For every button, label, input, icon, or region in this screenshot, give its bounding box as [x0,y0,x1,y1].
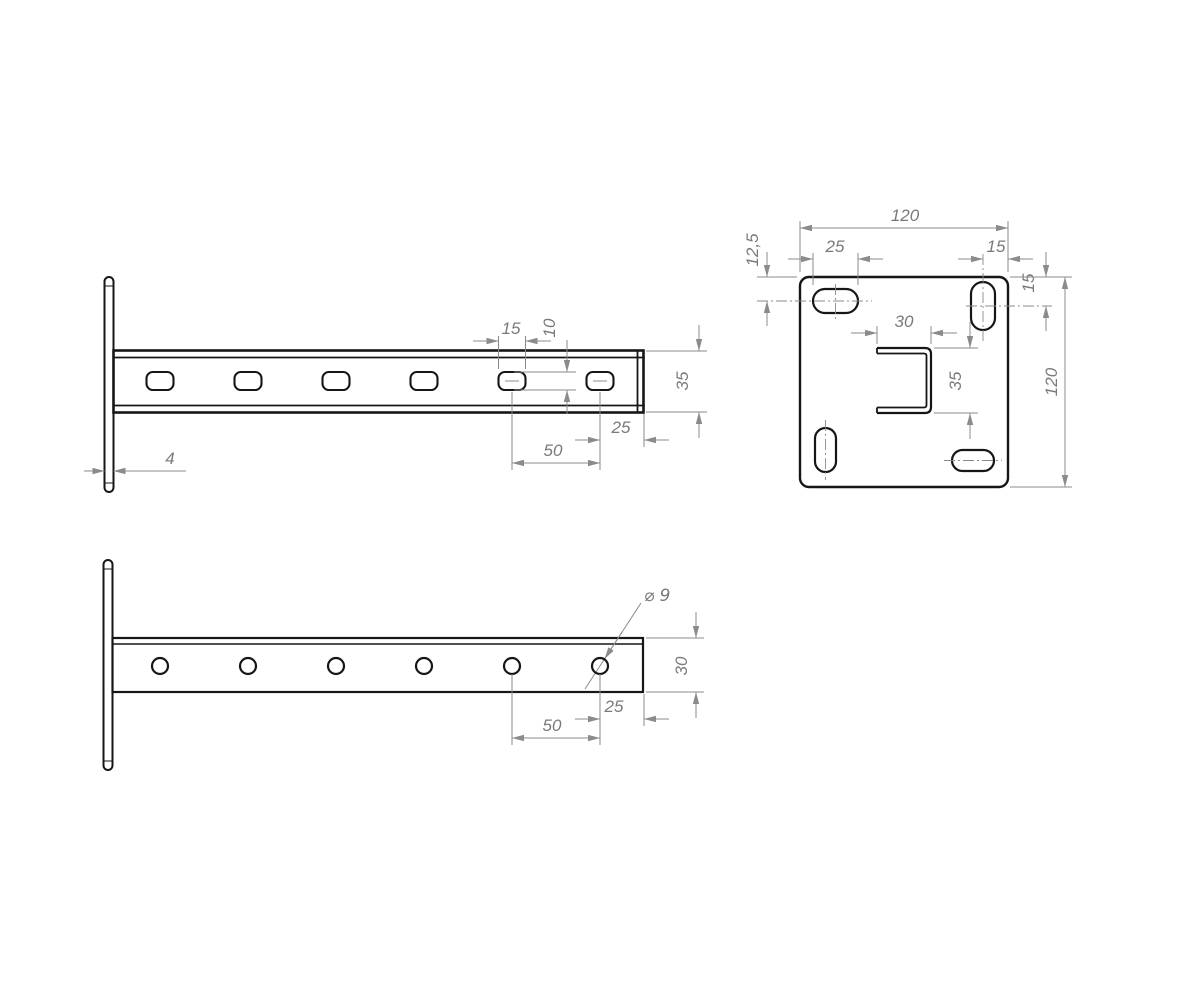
dim-label: 15 [987,237,1006,256]
drawing-svg: 15 10 35 25 50 [0,0,1200,1000]
plan-view-strip [113,638,644,692]
dim-top-edge-to-slot: 12,5 [743,233,797,326]
slot [323,372,350,390]
dim-label: 25 [825,237,845,256]
dim-label: 25 [604,697,624,716]
dim-label: 120 [1042,367,1061,396]
plan-view: ⌀ 9 30 25 50 [104,560,705,770]
dim-label: 25 [611,418,631,437]
technical-drawing-canvas: 15 10 35 25 50 [0,0,1200,1000]
dim-label: 30 [895,312,914,331]
dim-label: 120 [891,206,920,225]
dim-strip-width: 30 [646,612,704,718]
face-plate-view: 120 25 15 12,5 15 [743,206,1072,487]
dim-label: 4 [165,449,174,468]
dim-label-hole-diameter: ⌀ 9 [644,586,670,606]
side-view-wall-plate [105,277,114,492]
dim-right-edge-to-slot: 15 [1019,252,1046,331]
dim-label: 50 [544,441,563,460]
slot [411,372,438,390]
side-view-channel [114,351,644,413]
side-view: 15 10 35 25 50 [84,277,707,492]
slot [147,372,174,390]
dim-label: 35 [946,371,965,390]
dim-label: 15 [502,319,521,338]
dim-label: 12,5 [743,233,762,267]
dim-plate-thickness: 4 [84,449,186,471]
dim-plate-height: 120 [1010,277,1072,487]
dim-label: 50 [543,716,562,735]
plan-view-wall-plate [104,560,113,770]
slot [235,372,262,390]
dim-label: 30 [672,656,691,675]
dim-profile-height: 35 [646,325,707,438]
dim-label: 15 [1019,273,1038,292]
dim-label: 10 [540,318,559,337]
dim-slot-to-edge: 15 [958,237,1033,259]
dim-label: 35 [673,371,692,390]
